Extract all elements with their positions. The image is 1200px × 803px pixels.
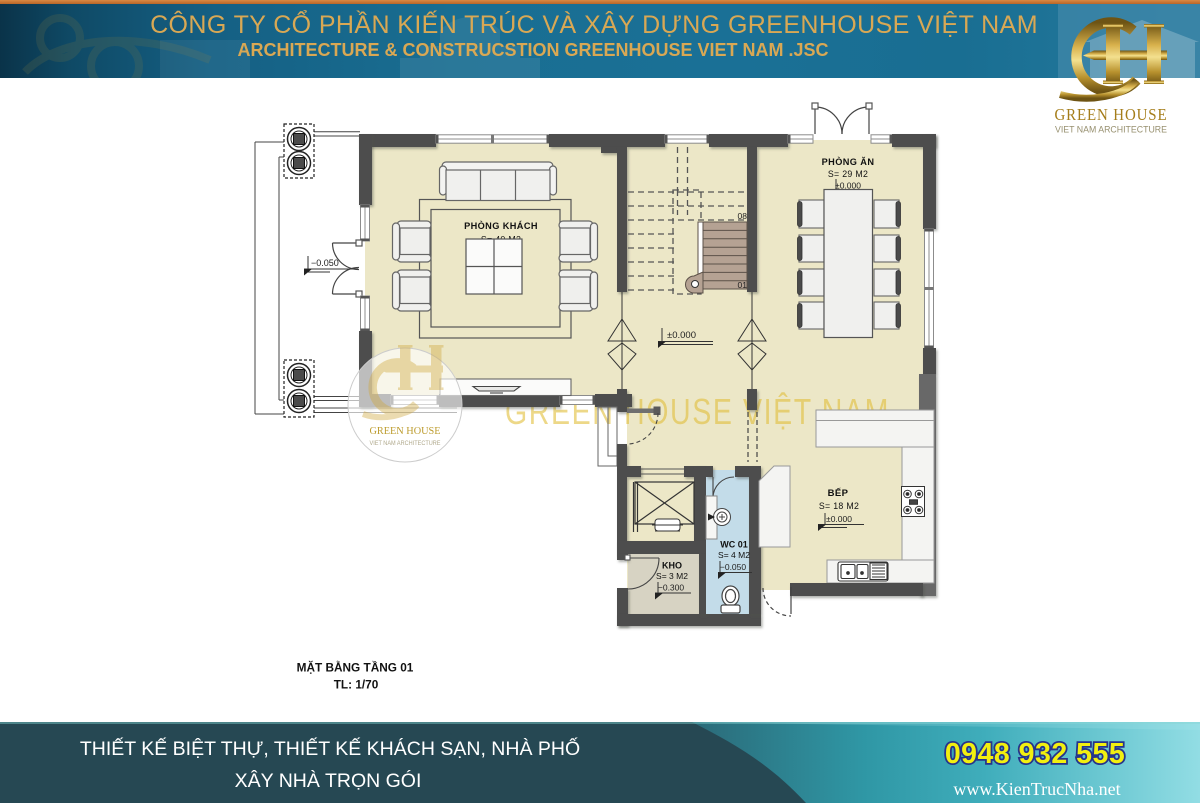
- svg-text:VIET NAM ARCHITECTURE: VIET NAM ARCHITECTURE: [1055, 125, 1167, 135]
- svg-text:GREEN HOUSE: GREEN HOUSE: [1055, 105, 1168, 124]
